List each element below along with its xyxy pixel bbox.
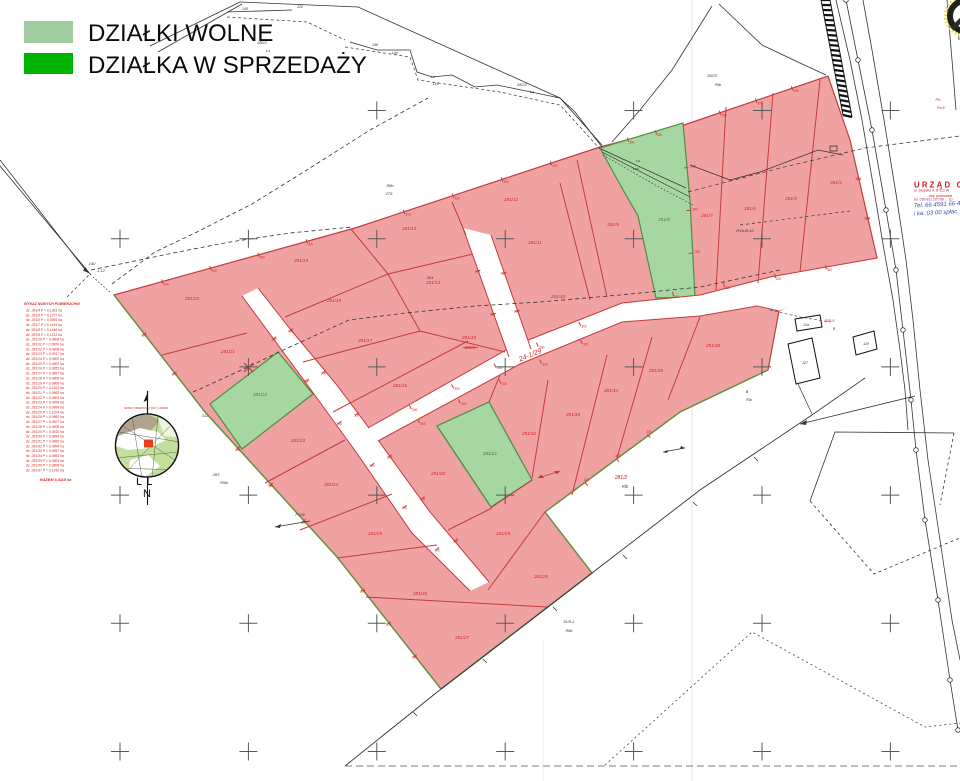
svg-text:281/26: 281/26 bbox=[412, 591, 427, 596]
svg-text:300: 300 bbox=[387, 456, 393, 460]
svg-text:300: 300 bbox=[163, 283, 169, 287]
svg-text:300: 300 bbox=[308, 242, 314, 246]
svg-text:300: 300 bbox=[141, 334, 147, 338]
svg-text:300: 300 bbox=[629, 141, 635, 145]
svg-text:281/11: 281/11 bbox=[527, 240, 542, 245]
svg-text:140: 140 bbox=[89, 261, 96, 266]
svg-text:dz. 281/13 P = 0,0917 ha: dz. 281/13 P = 0,0917 ha bbox=[26, 352, 64, 356]
svg-text:P-108: P-108 bbox=[295, 513, 304, 517]
svg-text:281/29: 281/29 bbox=[495, 531, 510, 536]
svg-text:281/4: 281/4 bbox=[829, 180, 842, 185]
svg-text:dz. 281/22 P = 0,0804 ha: dz. 281/22 P = 0,0804 ha bbox=[26, 396, 64, 400]
svg-text:300: 300 bbox=[337, 422, 343, 426]
svg-text:300: 300 bbox=[776, 277, 782, 281]
svg-text:dz. 281/32 P = 0,0864 ha: dz. 281/32 P = 0,0864 ha bbox=[26, 444, 64, 448]
svg-text:300: 300 bbox=[461, 402, 467, 406]
svg-text:300: 300 bbox=[475, 269, 481, 273]
svg-text:281/35: 281/35 bbox=[648, 368, 663, 373]
svg-text:300: 300 bbox=[271, 338, 277, 342]
svg-text:dz. 281/35 P = 0,0905 ha: dz. 281/35 P = 0,0905 ha bbox=[26, 459, 64, 463]
svg-text:300: 300 bbox=[646, 430, 652, 434]
svg-text:281/14: 281/14 bbox=[425, 280, 440, 285]
svg-text:300: 300 bbox=[369, 464, 375, 468]
svg-text:281/30: 281/30 bbox=[430, 471, 445, 476]
svg-text:300: 300 bbox=[827, 268, 833, 272]
svg-text:129: 129 bbox=[863, 342, 869, 346]
svg-text:281/13: 281/13 bbox=[401, 226, 416, 231]
svg-text:dz. 281/19 P = 0,0808 ha: dz. 281/19 P = 0,0808 ha bbox=[26, 381, 64, 385]
svg-text:300: 300 bbox=[855, 177, 861, 181]
svg-text:312: 312 bbox=[202, 413, 209, 418]
svg-text:dz. 281/9 P = 0,1213 ha: dz. 281/9 P = 0,1213 ha bbox=[26, 333, 62, 337]
svg-text:12a: 12a bbox=[803, 323, 809, 327]
svg-text:LdV: LdV bbox=[392, 51, 399, 55]
svg-text:SZKIC ORIENTACYJNY 1:25000: SZKIC ORIENTACYJNY 1:25000 bbox=[124, 406, 169, 410]
svg-text:300: 300 bbox=[304, 380, 310, 384]
svg-text:PsIV: PsIV bbox=[937, 105, 946, 110]
svg-text:281/10: 281/10 bbox=[550, 294, 565, 299]
svg-text:dz. 281/24 P = 0,0864 ha: dz. 281/24 P = 0,0864 ha bbox=[26, 406, 64, 410]
svg-text:B: B bbox=[746, 390, 749, 394]
svg-text:LsV: LsV bbox=[433, 82, 440, 86]
svg-text:dz. 281/11 P = 0,0806 ha: dz. 281/11 P = 0,0806 ha bbox=[26, 343, 64, 347]
svg-text:Rllb: Rllb bbox=[566, 628, 574, 633]
svg-text:dz. 281/15 P = 0,0902 ha: dz. 281/15 P = 0,0902 ha bbox=[26, 362, 64, 366]
svg-text:300: 300 bbox=[514, 309, 520, 313]
svg-text:300: 300 bbox=[793, 89, 799, 93]
svg-text:281/38: 281/38 bbox=[705, 343, 720, 348]
svg-text:281/7: 281/7 bbox=[700, 213, 713, 218]
svg-text:dz. 281/34 P = 0,0865 ha: dz. 281/34 P = 0,0865 ha bbox=[26, 454, 64, 458]
svg-text:300: 300 bbox=[725, 286, 731, 290]
svg-text:WYKAZ NOWYCH POWIERZCHNI: WYKAZ NOWYCH POWIERZCHNI bbox=[24, 302, 81, 306]
svg-text:300: 300 bbox=[321, 372, 327, 376]
svg-text:Rlllb: Rlllb bbox=[220, 480, 229, 485]
svg-text:300: 300 bbox=[172, 373, 178, 377]
svg-text:300: 300 bbox=[542, 362, 548, 366]
svg-text:Rllb: Rllb bbox=[387, 183, 395, 188]
svg-text:300: 300 bbox=[420, 422, 426, 426]
svg-text:dz. 281/10 P = 0,0808 ha: dz. 281/10 P = 0,0808 ha bbox=[26, 338, 64, 342]
svg-text:281/8: 281/8 bbox=[657, 217, 670, 222]
svg-text:281/9: 281/9 bbox=[606, 222, 619, 227]
svg-text:300: 300 bbox=[503, 180, 509, 184]
svg-text:dz. 281/17 P = 0,0857 ha: dz. 281/17 P = 0,0857 ha bbox=[26, 372, 64, 376]
svg-text:300: 300 bbox=[260, 256, 266, 260]
svg-text:281/19: 281/19 bbox=[293, 258, 308, 263]
svg-text:dz. 281/6 P = 0,0991 ha: dz. 281/6 P = 0,0991 ha bbox=[26, 318, 62, 322]
svg-text:DZIAŁKA W SPRZEDAŻY: DZIAŁKA W SPRZEDAŻY bbox=[88, 52, 367, 79]
svg-text:281/22: 281/22 bbox=[252, 392, 267, 397]
svg-text:ul. Słupska 9, 8-312 W: ul. Słupska 9, 8-312 W bbox=[914, 189, 950, 193]
svg-text:300: 300 bbox=[405, 213, 411, 217]
svg-text:281/33: 281/33 bbox=[565, 412, 580, 417]
svg-text:304: 304 bbox=[427, 275, 434, 280]
svg-text:281/34: 281/34 bbox=[603, 388, 618, 393]
svg-text:300: 300 bbox=[501, 271, 507, 275]
svg-text:300: 300 bbox=[434, 548, 440, 552]
svg-text:300: 300 bbox=[412, 408, 418, 412]
svg-text:148: 148 bbox=[372, 43, 378, 47]
svg-text:300: 300 bbox=[864, 217, 870, 221]
svg-text:Ls: Ls bbox=[530, 89, 534, 94]
svg-text:282/3: 282/3 bbox=[706, 73, 718, 78]
svg-text:281/21: 281/21 bbox=[482, 451, 497, 456]
svg-text:300: 300 bbox=[402, 506, 408, 510]
svg-text:N: N bbox=[143, 488, 151, 500]
svg-text:281/18: 281/18 bbox=[326, 298, 341, 303]
svg-text:281/27: 281/27 bbox=[454, 635, 469, 640]
svg-text:dz. 281/4 P = 0,1361 ha: dz. 281/4 P = 0,1361 ha bbox=[26, 309, 62, 313]
svg-text:dz. 281/30 P = 0,0854 ha: dz. 281/30 P = 0,0854 ha bbox=[26, 435, 64, 439]
svg-text:RAZEM 3,3115 ha: RAZEM 3,3115 ha bbox=[40, 478, 71, 482]
svg-text:300: 300 bbox=[583, 342, 589, 346]
svg-text:Rlb: Rlb bbox=[746, 398, 752, 402]
svg-text:dz. 281/12 P = 0,0808 ha: dz. 281/12 P = 0,0808 ha bbox=[26, 347, 64, 351]
svg-text:300: 300 bbox=[584, 478, 590, 482]
svg-text:dz. 281/8 P = 0,1446 ha: dz. 281/8 P = 0,1446 ha bbox=[26, 328, 62, 332]
svg-text:300: 300 bbox=[581, 324, 587, 328]
svg-text:281/15: 281/15 bbox=[461, 335, 476, 340]
svg-text:Pb: Pb bbox=[936, 97, 942, 102]
svg-text:dz. 281/29 P = 0,0810 ha: dz. 281/29 P = 0,0810 ha bbox=[26, 430, 64, 434]
svg-text:300: 300 bbox=[420, 498, 426, 502]
svg-text:300: 300 bbox=[412, 656, 418, 660]
svg-text:281/21: 281/21 bbox=[220, 349, 235, 354]
svg-text:Ls: Ls bbox=[431, 75, 435, 79]
svg-text:dz. 281/21 P = 0,0869 ha: dz. 281/21 P = 0,0869 ha bbox=[26, 391, 64, 395]
svg-text:281/25: 281/25 bbox=[367, 531, 382, 536]
svg-text:281/23: 281/23 bbox=[290, 438, 305, 443]
svg-text:300: 300 bbox=[490, 312, 496, 316]
svg-text:dz. 281/25 P = 0,1024 ha: dz. 281/25 P = 0,1024 ha bbox=[26, 410, 64, 414]
svg-text:281/24: 281/24 bbox=[323, 482, 338, 487]
svg-text:283: 283 bbox=[212, 472, 220, 477]
svg-text:300: 300 bbox=[454, 387, 460, 391]
svg-text:Rlb: Rlb bbox=[622, 484, 629, 489]
svg-text:300: 300 bbox=[615, 454, 621, 458]
svg-text:300: 300 bbox=[454, 196, 460, 200]
svg-text:dz. 281/7 P = 0,1154 ha: dz. 281/7 P = 0,1154 ha bbox=[26, 323, 62, 327]
svg-text:300: 300 bbox=[212, 269, 218, 273]
svg-text:300: 300 bbox=[235, 448, 241, 452]
svg-text:281/12: 281/12 bbox=[503, 197, 518, 202]
svg-text:dz. 281/26 P = 0,0865 ha: dz. 281/26 P = 0,0865 ha bbox=[26, 415, 64, 419]
svg-text:dz. 281/18 P = 0,0808 ha: dz. 281/18 P = 0,0808 ha bbox=[26, 376, 64, 380]
svg-text:281/6: 281/6 bbox=[743, 206, 756, 211]
svg-text:dz. 281/28 P = 0,0808 ha: dz. 281/28 P = 0,0808 ha bbox=[26, 425, 64, 429]
svg-text:281/5: 281/5 bbox=[784, 196, 797, 201]
svg-text:300: 300 bbox=[552, 164, 558, 168]
svg-text:300: 300 bbox=[721, 114, 727, 118]
svg-text:dz. 281/31 P = 0,0860 ha: dz. 281/31 P = 0,0860 ha bbox=[26, 440, 64, 444]
svg-text:145: 145 bbox=[242, 7, 248, 11]
svg-text:281/17: 281/17 bbox=[357, 338, 372, 343]
svg-text:281/32: 281/32 bbox=[521, 431, 536, 436]
svg-text:300: 300 bbox=[657, 133, 663, 137]
svg-text:300: 300 bbox=[695, 250, 701, 254]
svg-text:300: 300 bbox=[674, 295, 680, 299]
svg-text:dz. 281/5 P = 0,1277 ha: dz. 281/5 P = 0,1277 ha bbox=[26, 313, 62, 317]
svg-text:281/28: 281/28 bbox=[533, 574, 548, 579]
svg-text:300: 300 bbox=[288, 330, 294, 334]
svg-text:RVb-B-10: RVb-B-10 bbox=[736, 228, 754, 233]
svg-text:DZIAŁKI WOLNE: DZIAŁKI WOLNE bbox=[88, 20, 273, 47]
svg-text:dz. 281/33 P = 0,0857 ha: dz. 281/33 P = 0,0857 ha bbox=[26, 449, 64, 453]
svg-text:281/2: 281/2 bbox=[614, 475, 628, 481]
svg-text:300: 300 bbox=[453, 540, 459, 544]
svg-text:dz. 281/20 P = 0,1163 ha: dz. 281/20 P = 0,1163 ha bbox=[26, 386, 64, 390]
svg-text:300: 300 bbox=[693, 207, 699, 211]
svg-text:dz. 281/23 P = 0,0854 ha: dz. 281/23 P = 0,0854 ha bbox=[26, 401, 64, 405]
svg-text:Rlb: Rlb bbox=[715, 82, 722, 87]
svg-text:300: 300 bbox=[354, 414, 360, 418]
svg-text:dz. 281/16 P = 0,0851 ha: dz. 281/16 P = 0,0851 ha bbox=[26, 367, 64, 371]
svg-text:dz. 281/14 P = 0,0900 ha: dz. 281/14 P = 0,0900 ha bbox=[26, 357, 64, 361]
svg-text:dz. 281/36 P = 0,0808 ha: dz. 281/36 P = 0,0808 ha bbox=[26, 464, 64, 468]
svg-text:dz. 281/37 P = 0,1242 ha: dz. 281/37 P = 0,1242 ha bbox=[26, 469, 64, 473]
svg-text:300: 300 bbox=[386, 623, 392, 627]
svg-text:300: 300 bbox=[268, 484, 274, 488]
svg-text:281/16: 281/16 bbox=[392, 383, 407, 388]
svg-text:300: 300 bbox=[360, 590, 366, 594]
svg-text:Ls: Ls bbox=[636, 159, 640, 163]
svg-text:dz. 281/27 P = 0,0827 ha: dz. 281/27 P = 0,0827 ha bbox=[26, 420, 64, 424]
svg-text:279: 279 bbox=[385, 191, 393, 196]
svg-text:281/20: 281/20 bbox=[184, 296, 199, 301]
svg-text:91/5-L: 91/5-L bbox=[563, 619, 574, 624]
svg-text:120: 120 bbox=[297, 5, 303, 9]
svg-text:300: 300 bbox=[502, 382, 508, 386]
